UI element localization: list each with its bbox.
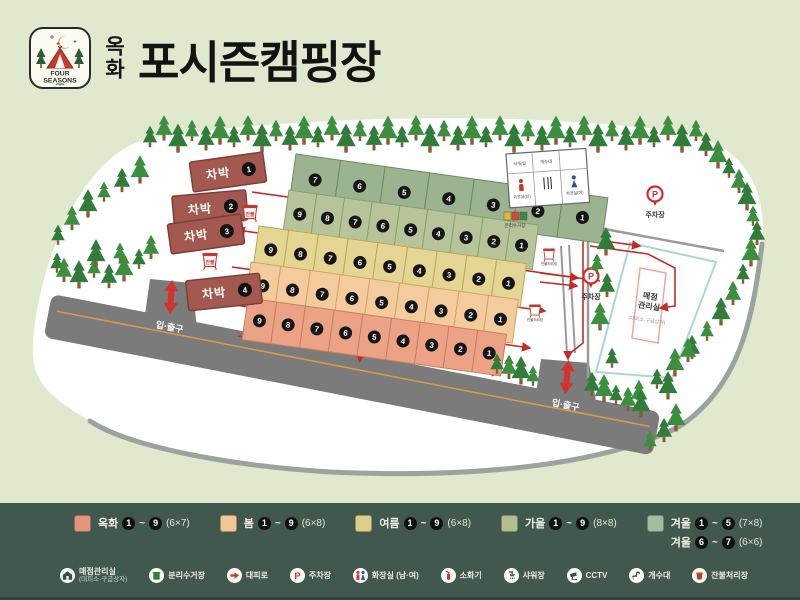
recycle-label: 분리수거장 bbox=[505, 222, 526, 229]
four-seasons-logo-icon: FOUR SEASONS bbox=[28, 26, 92, 90]
legend-season-size: (6×8) bbox=[302, 518, 326, 529]
legend-site-number: 5 bbox=[722, 517, 735, 530]
parking-icon: P bbox=[290, 568, 305, 583]
parking-label: 주차장 bbox=[645, 210, 665, 219]
campground-map: 매점관리실(대피소·구급상자)7654321987654321987654321… bbox=[0, 96, 800, 503]
legend-season-name: 옥화 bbox=[98, 515, 118, 531]
svg-text:잔불처리장: 잔불처리장 bbox=[527, 317, 544, 322]
route-icon bbox=[227, 568, 242, 583]
legend-facility-ember: 잔불처리장 bbox=[692, 568, 748, 583]
svg-text:잔불: 잔불 bbox=[205, 259, 215, 266]
chabak-label: 차박 bbox=[201, 284, 227, 301]
legend-season-name: 봄 bbox=[244, 515, 254, 531]
legend-site-number: 1 bbox=[695, 517, 708, 530]
legend-facility-label: CCTV bbox=[586, 571, 608, 580]
legend-facility-label: 매점관리실(대피소·구급상자) bbox=[79, 567, 127, 584]
legend-facility-route: 대피로 bbox=[227, 568, 268, 583]
legend-season-size: (6×7) bbox=[166, 518, 190, 529]
svg-text:P: P bbox=[588, 272, 594, 282]
legend-site-number: 7 bbox=[722, 536, 735, 549]
legend-color-swatch bbox=[355, 515, 372, 532]
legend-facility-shower: 샤워장 bbox=[504, 568, 545, 583]
svg-text:P: P bbox=[294, 571, 300, 581]
legend-site-number: 9 bbox=[285, 517, 298, 530]
legend-color-swatch bbox=[74, 515, 91, 532]
legend-facility-toilet: 화장실 (남·여) bbox=[353, 568, 419, 583]
legend-facility-label: 소화기 bbox=[460, 571, 482, 580]
legend-facility-extinguisher: 소화기 bbox=[441, 568, 482, 583]
legend-color-swatch bbox=[220, 515, 237, 532]
legend-facility-label: 샤워장 bbox=[523, 571, 545, 580]
svg-text:화장실(남): 화장실(남) bbox=[513, 192, 531, 199]
legend-season-item: 가을1~9(8×8) bbox=[501, 515, 617, 532]
store-label: 매점 bbox=[642, 290, 658, 302]
svg-text:P: P bbox=[652, 190, 658, 200]
legend-facility-label: 화장실 (남·여) bbox=[372, 571, 419, 580]
page-title: 포시즌캠핑장 bbox=[138, 26, 380, 91]
legend-facilities: 매점관리실(대피소·구급상자)분리수거장대피로P주차장화장실 (남·여)소화기샤… bbox=[60, 567, 748, 584]
legend-season-item: 봄1~9(6×8) bbox=[220, 515, 326, 532]
legend-facility-store: 매점관리실(대피소·구급상자) bbox=[60, 567, 127, 584]
legend-bar: 옥화1~9(6×7)봄1~9(6×8)여름1~9(6×8)가을1~9(8×8)겨… bbox=[0, 503, 800, 600]
logo-text-four: FOUR bbox=[50, 71, 69, 78]
sink-icon bbox=[629, 568, 644, 583]
legend-facility-label: 잔불처리장 bbox=[711, 571, 748, 580]
legend-season-name: 여름 bbox=[379, 515, 399, 531]
recycle-icon bbox=[149, 568, 164, 583]
chabak-label: 차박 bbox=[187, 200, 212, 217]
legend-season-size: (6×6) bbox=[739, 537, 763, 548]
cctv-icon bbox=[567, 568, 582, 583]
ember-icon bbox=[692, 568, 707, 583]
legend-season-name: 겨울 bbox=[671, 534, 691, 550]
legend-season-name: 겨울 bbox=[671, 515, 691, 531]
legend-site-number: 9 bbox=[430, 517, 443, 530]
svg-text:잔불처리장: 잔불처리장 bbox=[541, 261, 558, 266]
store-icon bbox=[60, 568, 75, 583]
svg-text:화장실(여): 화장실(여) bbox=[566, 189, 584, 196]
facilities-building: 샤워실개수대화장실(남)화장실(여) bbox=[506, 148, 590, 207]
extinguisher-icon bbox=[441, 568, 456, 583]
legend-facility-label: 주차장 bbox=[309, 571, 331, 580]
legend-season-size: (6×8) bbox=[447, 518, 471, 529]
legend-site-number: 1 bbox=[258, 517, 271, 530]
legend-site-number: 1 bbox=[404, 517, 417, 530]
page: FOUR SEASONS 옥화 포시즌캠핑장 매점관리실(대피소·구급상자)76… bbox=[0, 0, 800, 600]
header: FOUR SEASONS 옥화 포시즌캠핑장 bbox=[28, 22, 380, 94]
svg-text:잔불: 잔불 bbox=[245, 211, 255, 218]
legend-facility-sink: 개수대 bbox=[629, 568, 670, 583]
legend-facility-recycle: 분리수거장 bbox=[149, 568, 205, 583]
legend-site-number: 6 bbox=[695, 536, 708, 549]
legend-season-size: (8×8) bbox=[593, 518, 617, 529]
legend-season-item: 옥화1~9(6×7) bbox=[74, 515, 190, 532]
legend-site-number: 9 bbox=[149, 517, 162, 530]
legend-season-size: (7×8) bbox=[739, 518, 763, 529]
legend-site-number: 1 bbox=[122, 517, 135, 530]
legend-color-swatch bbox=[501, 515, 518, 532]
parking-label: 주차장 bbox=[581, 292, 601, 301]
brand-vertical-text: 옥화 bbox=[102, 35, 124, 81]
legend-season-item: 여름1~9(6×8) bbox=[355, 515, 471, 532]
legend-facility-label: 개수대 bbox=[648, 571, 670, 580]
legend-facility-sublabel: (대피소·구급상자) bbox=[79, 576, 127, 583]
legend-season-item: 겨울1~5(7×8)겨울6~7(6×6) bbox=[647, 515, 763, 550]
legend-site-number: 1 bbox=[549, 517, 562, 530]
legend-color-swatch bbox=[647, 515, 664, 532]
legend-seasons: 옥화1~9(6×7)봄1~9(6×8)여름1~9(6×8)가을1~9(8×8)겨… bbox=[74, 515, 792, 550]
logo-text-seasons: SEASONS bbox=[43, 78, 77, 85]
legend-facility-parking: P주차장 bbox=[290, 568, 331, 583]
legend-site-number: 9 bbox=[576, 517, 589, 530]
shower-icon bbox=[504, 568, 519, 583]
brand-char: 옥화 bbox=[102, 35, 124, 81]
legend-facility-cctv: CCTV bbox=[567, 568, 608, 583]
legend-facility-label: 대피로 bbox=[246, 571, 268, 580]
toilet-icon bbox=[353, 568, 368, 583]
legend-facility-label: 분리수거장 bbox=[168, 571, 205, 580]
legend-season-name: 가을 bbox=[525, 515, 545, 531]
